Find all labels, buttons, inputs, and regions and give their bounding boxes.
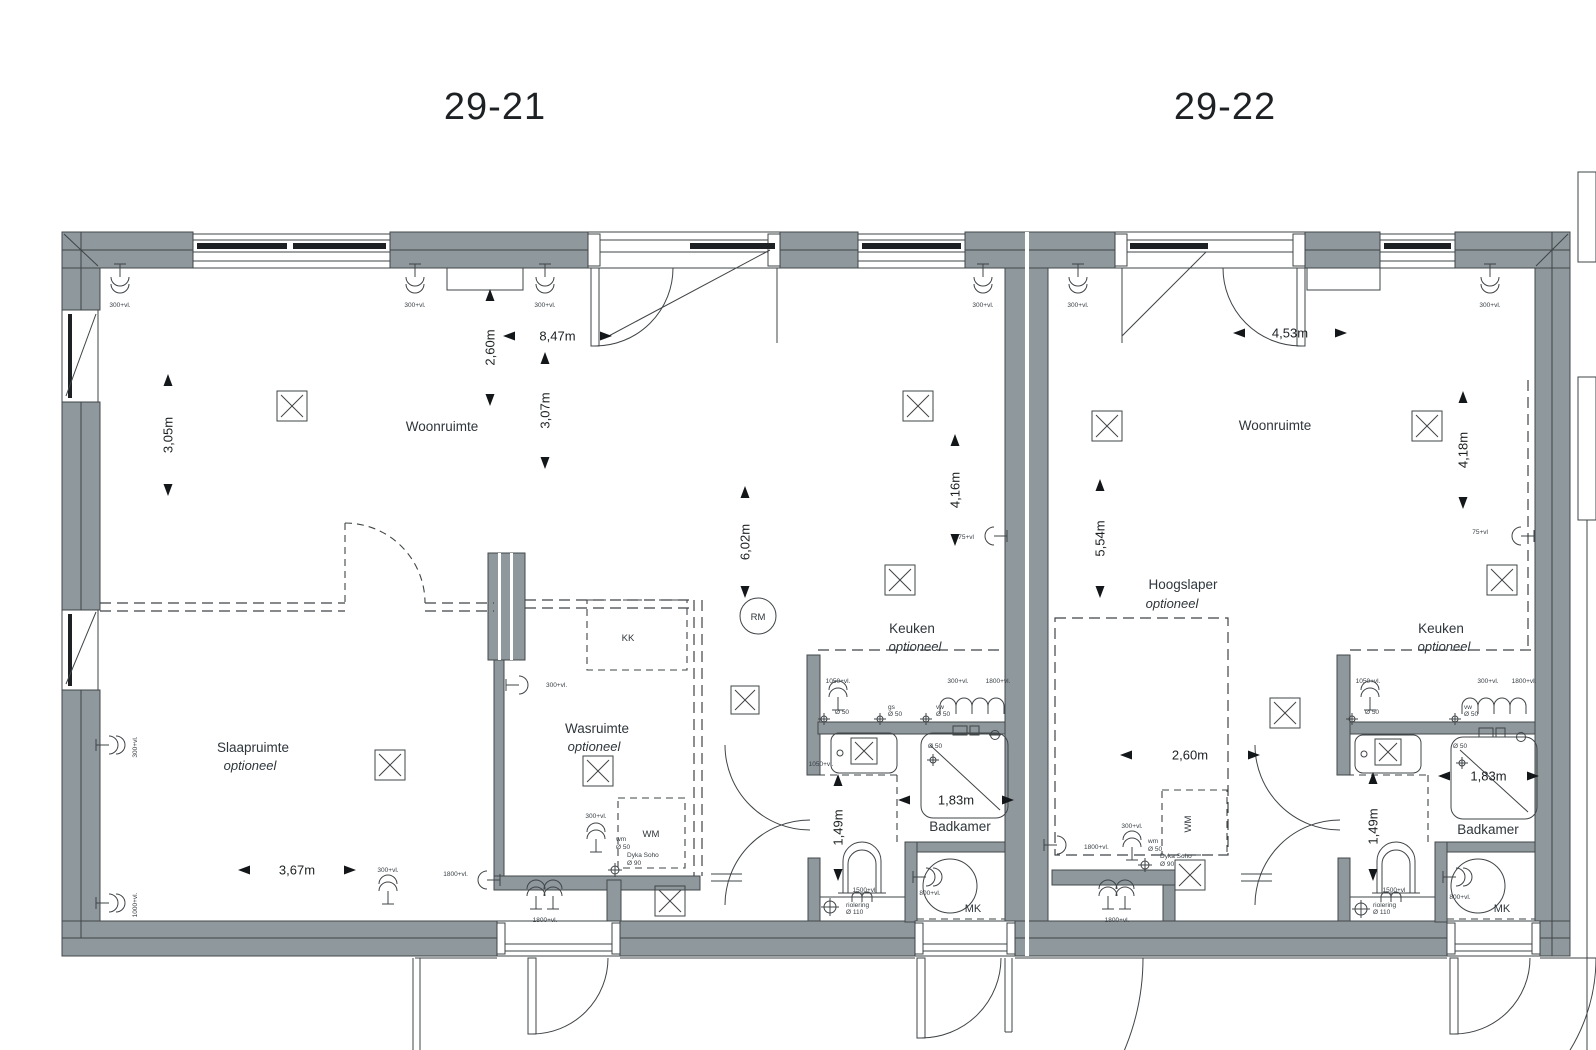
wall-segment bbox=[1435, 842, 1535, 852]
socket-icon bbox=[406, 277, 424, 286]
installation-annotation: riolering bbox=[1373, 902, 1397, 909]
plan-line bbox=[1578, 377, 1596, 520]
installation-annotation: wm bbox=[1147, 838, 1158, 845]
socket-icon bbox=[587, 830, 605, 839]
socket-icon bbox=[829, 681, 847, 710]
installation-annotation: Ø 110 bbox=[846, 909, 864, 916]
socket-icon bbox=[111, 284, 129, 293]
socket-strip-icon bbox=[956, 698, 972, 706]
opening-panel bbox=[858, 234, 965, 268]
dimension-arrow bbox=[1096, 479, 1105, 491]
socket-icon bbox=[379, 875, 397, 904]
opening-panel bbox=[612, 923, 620, 954]
socket-icon bbox=[587, 823, 605, 852]
room-label: optioneel bbox=[1418, 639, 1472, 654]
room-label: Woonruimte bbox=[406, 419, 479, 434]
plan-line bbox=[1255, 745, 1340, 830]
dimension-label: 2,60m bbox=[1172, 748, 1208, 763]
group-labels: WoonruimteWoonruimteSlaapruimteoptioneel… bbox=[217, 418, 1519, 915]
door-swing-arc bbox=[921, 958, 1001, 1038]
dashed-partition bbox=[345, 523, 425, 603]
installation-annotation: 300+vl. bbox=[947, 678, 968, 685]
socket-icon bbox=[1463, 868, 1472, 886]
installation-annotation: Ø 90 bbox=[1160, 861, 1174, 868]
dimension-arrow bbox=[1438, 772, 1450, 781]
room-label: Woonruimte bbox=[1239, 418, 1312, 433]
socket-icon bbox=[933, 868, 942, 886]
opening-panel bbox=[1447, 923, 1455, 954]
socket-icon bbox=[1512, 527, 1521, 545]
wall-segment bbox=[1163, 885, 1175, 921]
group-dimensions: 8,47m2,60m3,07m3,05m6,02m4,16m3,67m1,49m… bbox=[161, 289, 1540, 881]
dimension-arrow bbox=[541, 352, 550, 364]
dimension-arrow bbox=[1369, 869, 1378, 881]
opening-panel bbox=[588, 234, 600, 266]
dimension-label: 6,02m bbox=[738, 524, 753, 560]
installation-annotation: 300+vl. bbox=[585, 813, 606, 820]
room-label: Keuken bbox=[889, 621, 935, 636]
wall-segment bbox=[1435, 842, 1447, 922]
dimension-arrow bbox=[503, 332, 515, 341]
wall-segment bbox=[1338, 858, 1350, 921]
installation-annotation: 800+vl. bbox=[1449, 894, 1470, 901]
installation-annotation: Ø 50 bbox=[936, 711, 950, 718]
opening-panel bbox=[591, 268, 599, 346]
room-label: WM bbox=[1183, 815, 1194, 832]
installation-annotation: Ø 50 bbox=[888, 711, 902, 718]
dimension-arrow bbox=[1096, 586, 1105, 598]
floorplan-page: { "app": {"type": "architectural-floorpl… bbox=[0, 0, 1596, 1050]
installation-annotation: Ø 50 bbox=[1365, 709, 1379, 716]
dimension-arrow bbox=[1248, 751, 1260, 760]
opening-panel bbox=[1307, 268, 1380, 290]
opening-panel bbox=[498, 553, 501, 660]
wall-segment bbox=[494, 660, 504, 876]
dimension-arrow bbox=[741, 586, 750, 598]
dimension-arrow bbox=[1120, 751, 1132, 760]
window-sash bbox=[1130, 243, 1208, 249]
installation-annotation: 1050+vl. bbox=[809, 761, 834, 768]
socket-icon bbox=[587, 823, 605, 832]
plan-circle bbox=[1361, 751, 1367, 757]
group-walls bbox=[62, 232, 1570, 956]
group-centerlines bbox=[62, 232, 1570, 956]
room-label: optioneel bbox=[889, 639, 943, 654]
room-label: optioneel bbox=[568, 739, 622, 754]
group-annotations: 300+vl.300+vl.300+vl.300+vl.300+vl.1000+… bbox=[109, 302, 1536, 924]
dimension-label: 1,49m bbox=[1366, 808, 1381, 844]
plan-line bbox=[1578, 172, 1596, 262]
socket-icon bbox=[1456, 868, 1465, 886]
socket-icon bbox=[109, 736, 118, 754]
dashed-partition bbox=[1162, 790, 1227, 855]
dimension-arrow bbox=[951, 434, 960, 446]
dimension-arrow bbox=[1459, 497, 1468, 509]
dimension-arrow bbox=[834, 869, 843, 881]
socket-icon bbox=[1099, 887, 1117, 896]
dimension-arrow bbox=[238, 866, 250, 875]
dimension-label: 8,47m bbox=[539, 329, 575, 344]
wall-segment bbox=[808, 858, 820, 921]
wall-segment bbox=[905, 842, 917, 922]
installation-annotation: riolering bbox=[846, 902, 870, 909]
socket-icon bbox=[116, 736, 125, 754]
socket-icon bbox=[109, 894, 118, 912]
room-label: WM bbox=[643, 829, 660, 840]
wall-segment bbox=[818, 722, 1005, 734]
socket-icon bbox=[985, 527, 1007, 545]
installation-annotation: 1800+vl. bbox=[1105, 917, 1130, 924]
dimension-label: 1,83m bbox=[1470, 769, 1506, 784]
socket-icon bbox=[1057, 836, 1066, 854]
dimension-label: 1,83m bbox=[938, 793, 974, 808]
window-sash bbox=[197, 243, 287, 249]
room-label: MK bbox=[965, 903, 982, 915]
opening-panel bbox=[588, 232, 780, 268]
installation-annotation: 300+vl. bbox=[1121, 823, 1142, 830]
wall-segment bbox=[488, 553, 525, 660]
dimension-arrow bbox=[741, 486, 750, 498]
dimension-label: 3,07m bbox=[538, 392, 553, 428]
opening-panel bbox=[510, 553, 513, 660]
window-sash bbox=[1384, 243, 1451, 249]
installation-annotation: 1500+vl bbox=[1383, 887, 1407, 894]
dashed-partition bbox=[1055, 618, 1228, 855]
socket-strip-icon bbox=[1510, 698, 1526, 706]
installation-annotation: 300+vl. bbox=[972, 302, 993, 309]
dimension-arrow bbox=[164, 374, 173, 386]
socket-icon bbox=[111, 277, 129, 286]
socket-icon bbox=[536, 277, 554, 286]
socket-icon bbox=[536, 284, 554, 293]
wall-segment bbox=[1337, 655, 1350, 775]
opening-panel bbox=[1115, 232, 1305, 268]
installation-annotation: gs bbox=[888, 704, 896, 711]
installation-annotation: 1800+vl. bbox=[533, 917, 558, 924]
dimension-arrow bbox=[486, 394, 495, 406]
opening-panel bbox=[915, 923, 923, 954]
installation-annotation: 1800+vl. bbox=[1512, 678, 1537, 685]
wall-segment bbox=[1052, 870, 1175, 885]
opening-panel bbox=[1380, 234, 1455, 268]
opening-panel bbox=[1532, 923, 1540, 954]
room-label: MK bbox=[1494, 903, 1511, 915]
dimension-arrow bbox=[486, 289, 495, 301]
installation-annotation: vw bbox=[936, 704, 944, 711]
installation-annotation: 1050+vl. bbox=[1356, 678, 1381, 685]
dimension-label: 5,54m bbox=[1093, 520, 1108, 556]
installation-annotation: 300+vl. bbox=[1067, 302, 1088, 309]
plan-line bbox=[725, 820, 810, 905]
socket-icon bbox=[379, 875, 397, 884]
window-sash bbox=[690, 243, 775, 249]
group-electrics bbox=[96, 264, 1534, 918]
installation-annotation: 1050+vl. bbox=[826, 678, 851, 685]
installation-annotation: Ø 50 bbox=[616, 844, 630, 851]
socket-icon bbox=[1069, 284, 1087, 293]
dimension-arrow bbox=[834, 774, 843, 786]
dashed-partition bbox=[587, 600, 687, 670]
door-swing-arc bbox=[905, 958, 1143, 1050]
installation-annotation: Dyka Soho bbox=[1160, 853, 1192, 860]
installation-annotation: 1800+vl. bbox=[443, 871, 468, 878]
room-label: Badkamer bbox=[1457, 822, 1519, 837]
plan-circle bbox=[837, 750, 843, 756]
dimension-label: 4,18m bbox=[1456, 432, 1471, 468]
dimension-label: 2,60m bbox=[483, 329, 498, 365]
socket-icon bbox=[1123, 831, 1141, 840]
socket-strip-icon bbox=[1494, 698, 1510, 706]
installation-annotation: vw bbox=[1464, 704, 1472, 711]
door-swing-arc bbox=[1420, 958, 1596, 1050]
installation-annotation: 300+vl. bbox=[1477, 678, 1498, 685]
door-swing-arc bbox=[532, 958, 608, 1034]
plan-line bbox=[831, 733, 897, 773]
opening-panel bbox=[497, 923, 505, 954]
opening-panel bbox=[917, 958, 925, 1038]
dimension-arrow bbox=[164, 484, 173, 496]
installation-annotation: 300+vl. bbox=[132, 736, 139, 757]
installation-annotation: 1500+vl bbox=[853, 887, 877, 894]
socket-icon bbox=[1512, 527, 1534, 545]
opening-panel bbox=[1007, 923, 1015, 954]
floorplan-svg: 8,47m2,60m3,07m3,05m6,02m4,16m3,67m1,49m… bbox=[0, 0, 1596, 1050]
installation-annotation: Ø 50 bbox=[1148, 846, 1162, 853]
socket-icon bbox=[974, 277, 992, 286]
socket-strip-icon bbox=[972, 698, 988, 706]
plan-line bbox=[1355, 735, 1421, 773]
installation-annotation: 300+vl. bbox=[546, 682, 567, 689]
opening-panel bbox=[193, 234, 390, 268]
dimension-label: 4,53m bbox=[1272, 326, 1308, 341]
installation-annotation: 300+vl. bbox=[404, 302, 425, 309]
socket-icon bbox=[519, 676, 528, 694]
dimension-arrow bbox=[1369, 772, 1378, 784]
wall-segment bbox=[905, 842, 1005, 852]
installation-annotation: 300+vl. bbox=[534, 302, 555, 309]
room-label: optioneel bbox=[1146, 596, 1200, 611]
socket-icon bbox=[379, 882, 397, 891]
installation-annotation: 800+vl. bbox=[919, 890, 940, 897]
socket-icon bbox=[829, 688, 847, 697]
socket-icon bbox=[1361, 681, 1379, 710]
opening-panel bbox=[447, 268, 523, 290]
installation-annotation: Ø 50 bbox=[928, 743, 942, 750]
installation-annotation: 300+vl. bbox=[377, 867, 398, 874]
dimension-arrow bbox=[1335, 329, 1347, 338]
installation-annotation: wm bbox=[615, 836, 626, 843]
opening-panel bbox=[528, 958, 536, 1034]
dimension-label: 4,16m bbox=[948, 472, 963, 508]
installation-annotation: 1800+vl. bbox=[986, 678, 1011, 685]
installation-annotation: 300+vl. bbox=[1479, 302, 1500, 309]
socket-icon bbox=[406, 284, 424, 293]
installation-annotation: Ø 50 bbox=[1464, 711, 1478, 718]
window-sash bbox=[293, 243, 386, 249]
socket-strip-icon bbox=[1478, 698, 1494, 706]
room-label: optioneel bbox=[224, 758, 278, 773]
socket-icon bbox=[1116, 887, 1134, 896]
dimension-arrow bbox=[1233, 329, 1245, 338]
opening-panel bbox=[1293, 234, 1305, 266]
dimension-arrow bbox=[1459, 391, 1468, 403]
socket-icon bbox=[1123, 838, 1141, 847]
window-sash bbox=[862, 243, 961, 249]
room-label: KK bbox=[622, 633, 635, 644]
socket-icon bbox=[1481, 284, 1499, 293]
socket-icon bbox=[116, 894, 125, 912]
socket-icon bbox=[1069, 277, 1087, 286]
room-label: Badkamer bbox=[929, 819, 991, 834]
installation-annotation: Ø 110 bbox=[1373, 909, 1391, 916]
installation-annotation: Ø 50 bbox=[1453, 743, 1467, 750]
installation-annotation: Dyka Soho bbox=[627, 852, 659, 859]
plan-line bbox=[1255, 820, 1340, 905]
socket-strip-icon bbox=[988, 698, 1004, 706]
room-label: RM bbox=[751, 612, 766, 623]
dimension-arrow bbox=[344, 866, 356, 875]
socket-icon bbox=[506, 676, 528, 694]
installation-annotation: 300+vl. bbox=[109, 302, 130, 309]
dimension-arrow bbox=[600, 332, 612, 341]
dimension-arrow bbox=[541, 457, 550, 469]
socket-icon bbox=[985, 527, 994, 545]
opening-panel bbox=[1450, 958, 1458, 1034]
group-dashed-partitions bbox=[100, 380, 1535, 919]
room-label: Wasruimte bbox=[565, 721, 629, 736]
dimension-label: 3,67m bbox=[279, 863, 315, 878]
dimension-label: 3,05m bbox=[161, 417, 176, 453]
socket-icon bbox=[1481, 277, 1499, 286]
dimension-label: 1,49m bbox=[831, 809, 846, 845]
socket-icon bbox=[1361, 688, 1379, 697]
opening-panel bbox=[1115, 234, 1127, 266]
door-swing-arc bbox=[1454, 958, 1530, 1034]
opening-panel bbox=[1025, 232, 1029, 956]
wall-segment bbox=[494, 876, 700, 890]
installation-annotation: 1800+vl. bbox=[1084, 844, 1109, 851]
socket-icon bbox=[478, 871, 487, 889]
dimension-arrow bbox=[898, 796, 910, 805]
installation-annotation: 75+vl bbox=[958, 534, 974, 541]
socket-icon bbox=[974, 284, 992, 293]
socket-icon bbox=[1123, 831, 1141, 860]
plan-line bbox=[725, 745, 810, 830]
installation-annotation: Ø 50 bbox=[835, 709, 849, 716]
wall-segment bbox=[1350, 722, 1535, 734]
installation-annotation: 1000+vl. bbox=[132, 892, 139, 917]
wall-segment bbox=[807, 655, 820, 775]
wall-segment bbox=[607, 880, 621, 921]
room-label: Hoogslaper bbox=[1148, 577, 1218, 592]
room-label: Keuken bbox=[1418, 621, 1464, 636]
installation-annotation: 75+vl bbox=[1472, 529, 1488, 536]
installation-annotation: Ø 90 bbox=[627, 860, 641, 867]
room-label: Slaapruimte bbox=[217, 740, 289, 755]
